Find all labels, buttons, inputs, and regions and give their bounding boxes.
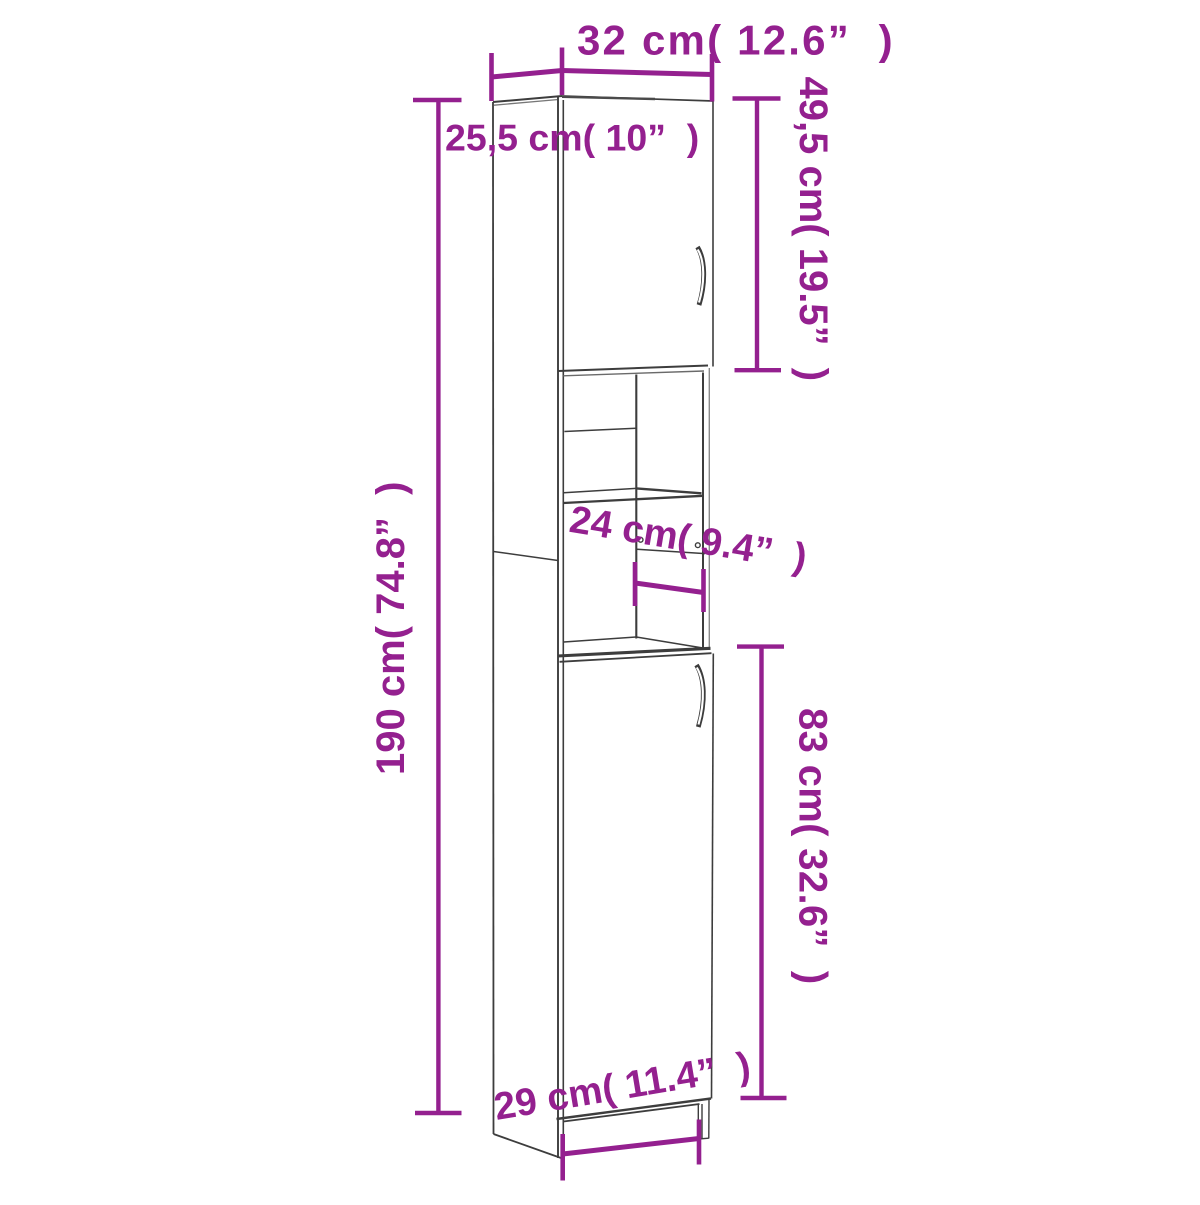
svg-text:190 cm( 74.8” ): 190 cm( 74.8” ) — [369, 482, 413, 776]
svg-text:83 cm( 32.6” ): 83 cm( 32.6” ) — [791, 708, 835, 985]
svg-text:49,5 cm( 19.5” ): 49,5 cm( 19.5” ) — [791, 77, 835, 382]
svg-text:32 cm( 12.6” ): 32 cm( 12.6” ) — [577, 17, 895, 64]
svg-text:25,5 cm( 10” ): 25,5 cm( 10” ) — [445, 117, 699, 159]
